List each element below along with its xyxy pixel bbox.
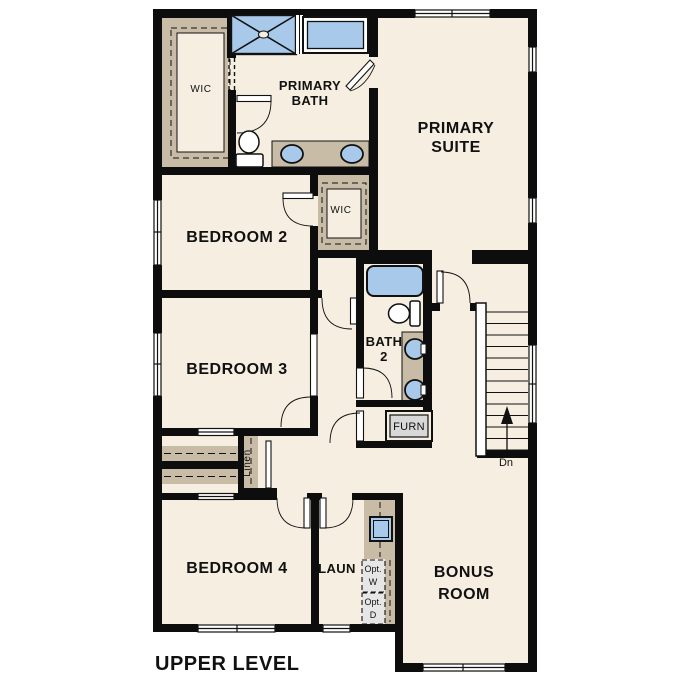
window-bedroom4-bottom [198, 625, 275, 632]
wic2-label: WIC [330, 205, 351, 216]
bath2-toilet [389, 301, 421, 326]
window-stairwell-right [529, 345, 536, 423]
primary-suite-label-line2: SUITE [431, 139, 481, 156]
primary-bath-sink-left [281, 145, 303, 163]
window-primary-suite-top [415, 10, 490, 17]
primary-bath-label-line2: BATH [292, 93, 329, 108]
window-bedroom3-left [154, 333, 161, 396]
primary-suite-label-line1: PRIMARY [418, 120, 495, 137]
window-bedroom2-left [154, 200, 161, 265]
opt-washer-label-line2: W [369, 577, 378, 587]
wic1-label: WIC [190, 84, 211, 95]
bedroom3-label: BEDROOM 3 [186, 361, 287, 378]
bath2-tub [367, 266, 423, 296]
bath2-label-line1: BATH [366, 334, 403, 349]
bath2-sink-top [405, 339, 426, 359]
furnace-label: FURN [393, 421, 425, 433]
floorplan-canvas: WIC PRIMARY BATH PRIMARY SUITE BEDROOM 2… [0, 0, 687, 687]
window-suite-right-upper [529, 47, 536, 72]
opt-dryer-label-line2: D [370, 610, 377, 620]
stairs-dn-label: Dn [499, 457, 513, 469]
window-suite-right-lower [529, 198, 536, 223]
primary-bath-sink-right [341, 145, 363, 163]
laundry-label: LAUN [318, 561, 356, 576]
door-linen [266, 441, 271, 488]
bonus-label-line1: BONUS [434, 564, 494, 581]
bath2-label-line2: 2 [380, 349, 388, 364]
opt-dryer-label-line1: Opt. [364, 597, 381, 607]
window-bonus-bottom [423, 664, 505, 671]
laundry-sink [370, 517, 392, 541]
bypass-door-bedroom3-closet [198, 429, 234, 436]
bedroom2-label: BEDROOM 2 [186, 229, 287, 246]
bath2-sink-bottom [405, 380, 426, 400]
primary-tub [303, 17, 368, 53]
window-laundry-bottom [323, 625, 350, 632]
floorplan-upper-level: WIC PRIMARY BATH PRIMARY SUITE BEDROOM 2… [0, 0, 687, 687]
primary-shower [231, 15, 303, 54]
bonus-label-line2: ROOM [438, 586, 490, 603]
plan-title: UPPER LEVEL [155, 653, 299, 675]
linen-label: Linen [242, 449, 253, 476]
bypass-door-bedroom4-closet [198, 494, 234, 500]
bedroom4-label: BEDROOM 4 [186, 560, 287, 577]
opt-washer-label-line1: Opt. [364, 564, 381, 574]
primary-bath-label-line1: PRIMARY [279, 78, 341, 93]
stair-railing [476, 303, 486, 456]
